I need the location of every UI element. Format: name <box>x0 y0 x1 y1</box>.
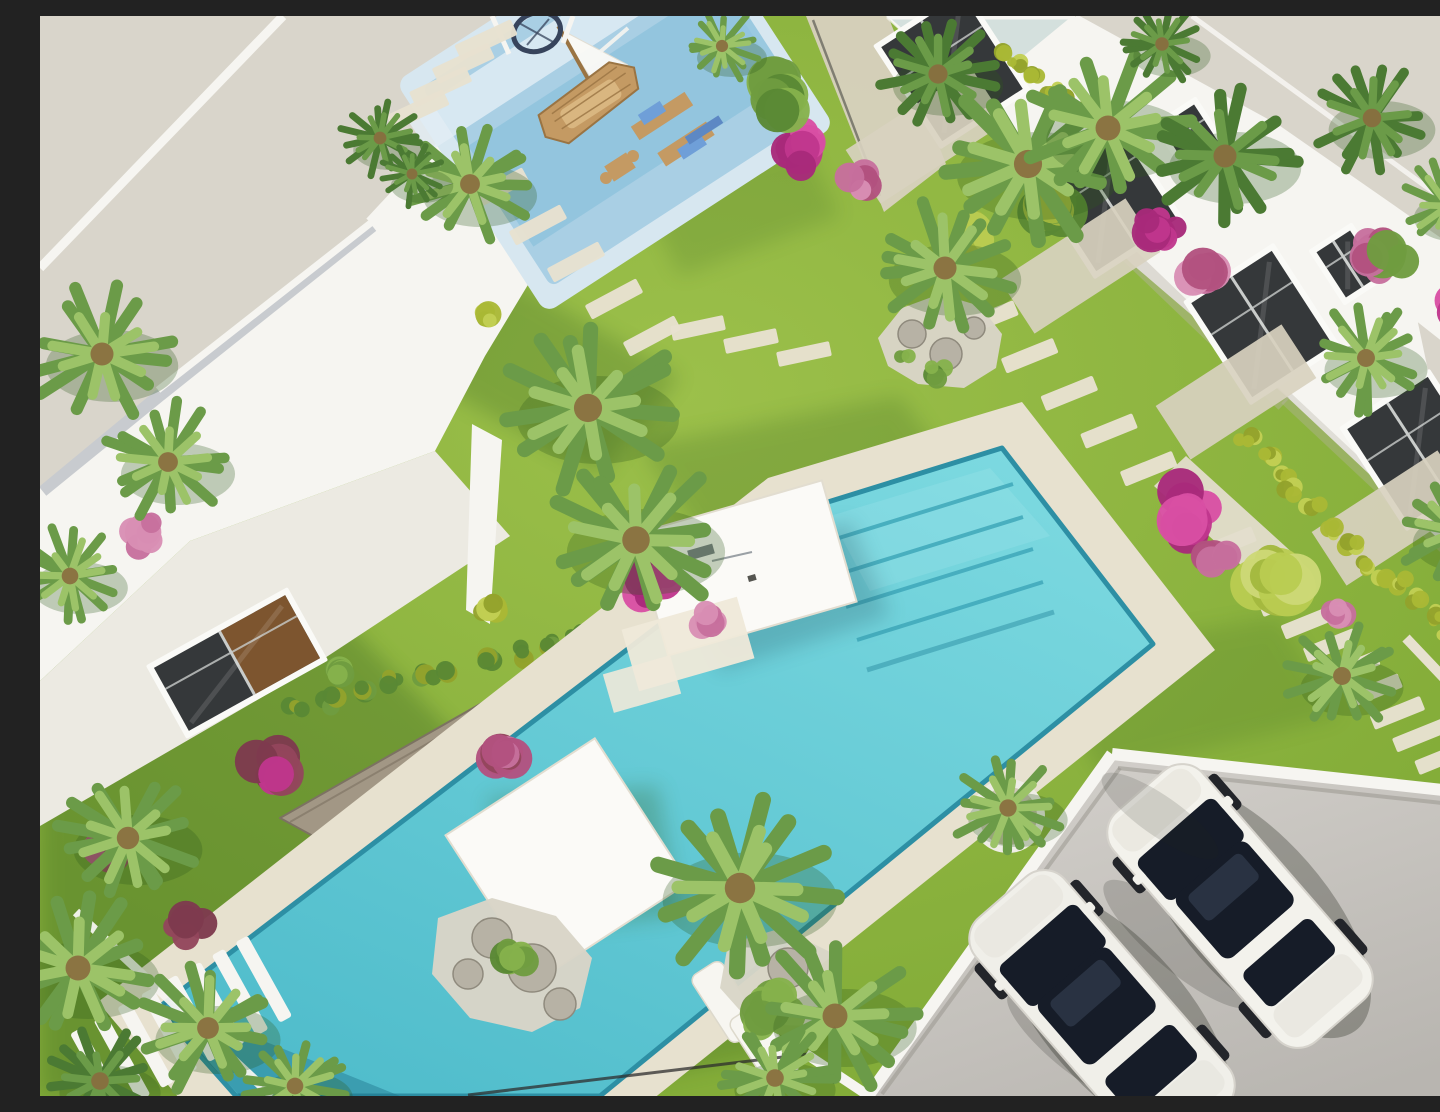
rock <box>898 320 926 348</box>
rock <box>544 988 576 1020</box>
play-stool <box>600 172 612 184</box>
render-canvas <box>40 16 1440 1096</box>
rock <box>453 959 483 989</box>
play-stool <box>627 150 639 162</box>
aerial-3d-render: Aerial 3D architectural render of a resi… <box>40 16 1440 1096</box>
succulent <box>894 349 916 363</box>
